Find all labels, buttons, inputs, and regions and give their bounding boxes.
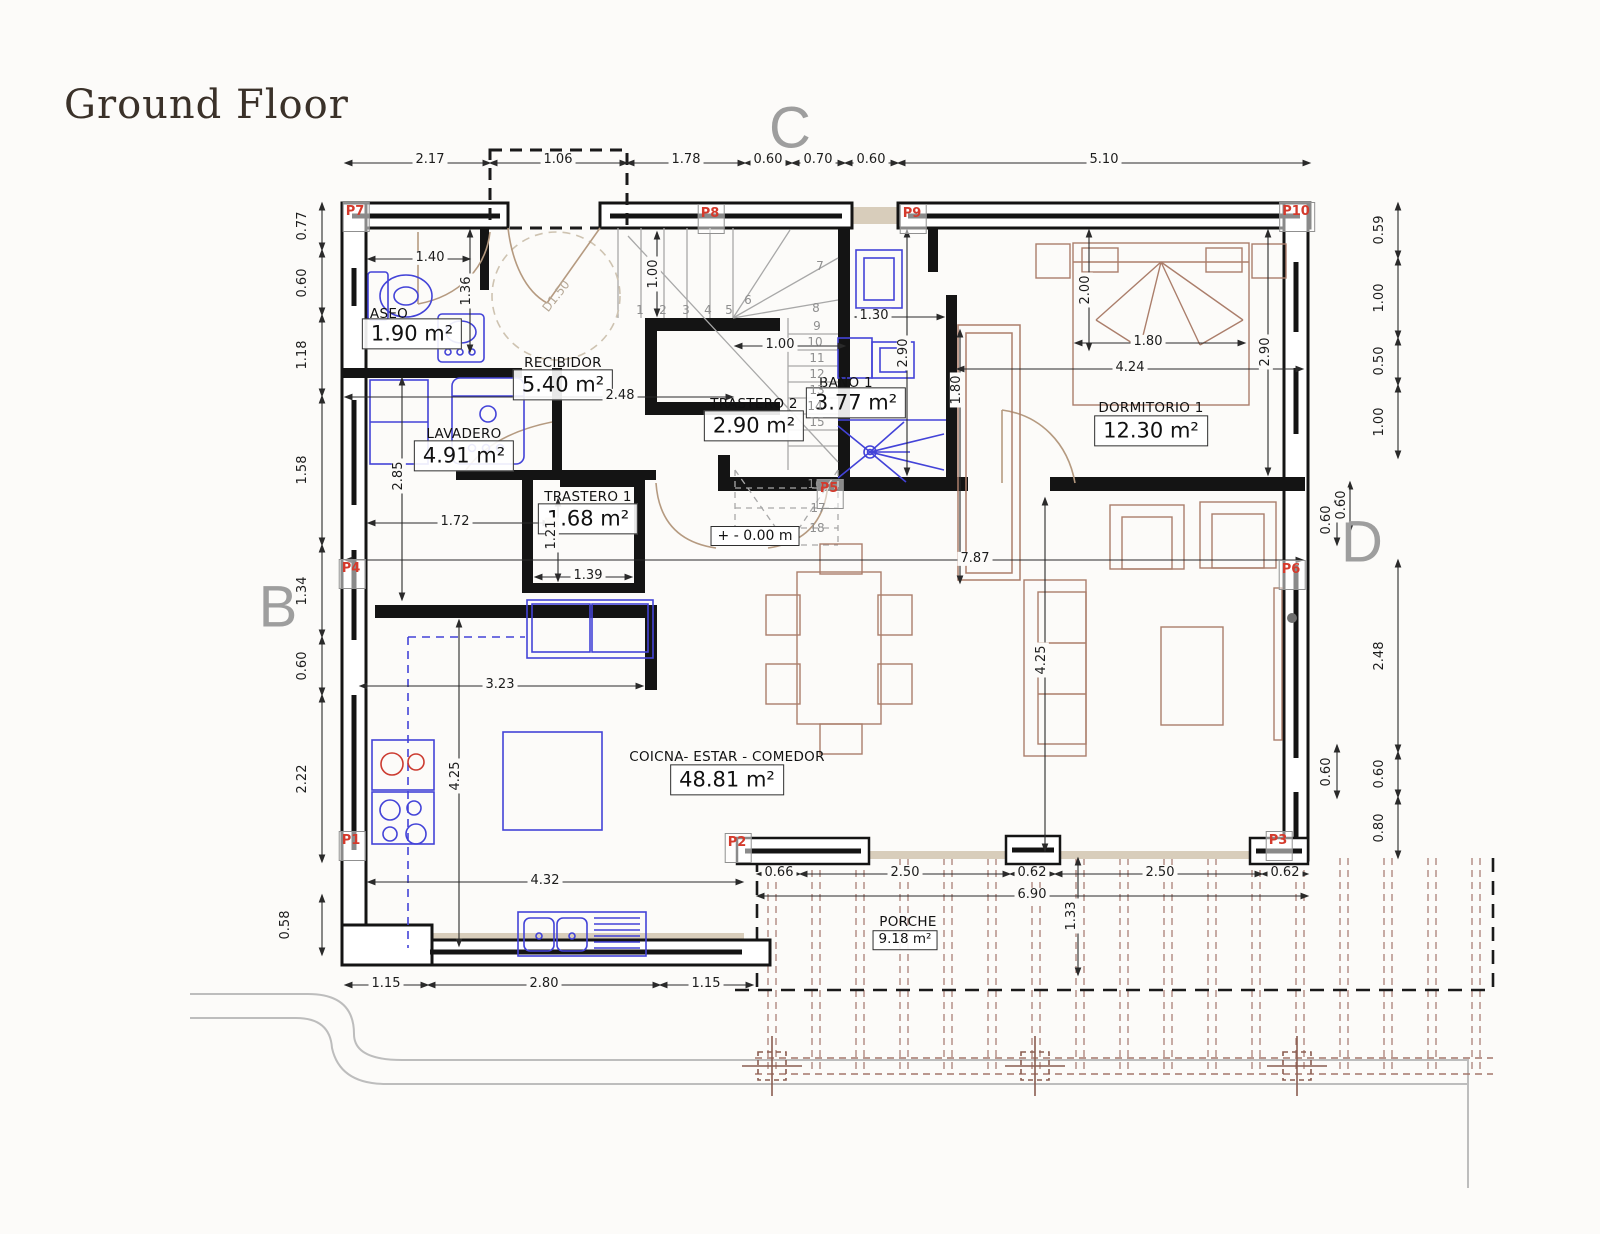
dim-interior: 1.40: [413, 251, 448, 265]
opening-label-p10: P10: [1279, 202, 1315, 232]
room-area-porche: 9.18 m²: [873, 930, 938, 950]
opening-label-p8: P8: [698, 204, 725, 234]
stair-step: 14: [807, 399, 822, 413]
dim-interior: 1.72: [438, 515, 473, 529]
opening-label-p7: P7: [343, 202, 370, 232]
dim-left: 1.58: [296, 453, 310, 488]
dim-left: 2.22: [296, 762, 310, 797]
floor-plan-page: Ground Floor C B D ASEO 1.90 m² RECIBIDO…: [0, 0, 1600, 1234]
page-title: Ground Floor: [64, 82, 349, 128]
wardrobe-outline: [958, 325, 1020, 580]
dim-interior: 3.23: [483, 678, 518, 692]
room-name-cocina-estar: COICNA- ESTAR - COMEDOR: [629, 749, 825, 765]
dim-right: 0.60: [1373, 757, 1387, 792]
dim-interior: 7.87: [958, 552, 993, 566]
opening-label-p9: P9: [900, 204, 927, 234]
dim-top: 0.60: [854, 153, 889, 167]
pergola-rafters: [755, 858, 1493, 1074]
stair-step: 12: [809, 367, 824, 381]
dim-top: 1.78: [669, 153, 704, 167]
dim-left: 0.77: [296, 209, 310, 244]
dim-right: 0.80: [1373, 811, 1387, 846]
stair-step: 17: [810, 501, 825, 515]
stair-step: 15: [809, 415, 824, 429]
dim-porch: 0.62: [1015, 866, 1050, 880]
dim-interior: 2.85: [392, 459, 406, 494]
stair-step: 13: [809, 383, 824, 397]
stair-step: 6: [744, 293, 752, 307]
stair-step: 3: [682, 303, 690, 317]
dim-porch: 6.90: [1015, 888, 1050, 902]
porch-boundary-dashed: [735, 858, 1493, 990]
stair-step: 16: [807, 477, 822, 491]
dim-bottom: 1.15: [369, 977, 404, 991]
room-name-dormitorio1: DORMITORIO 1: [1098, 400, 1203, 416]
stair-step: 5: [725, 303, 733, 317]
dim-porch: 0.66: [762, 866, 797, 880]
opening-label-p2: P2: [725, 833, 752, 863]
stair-step: 7: [816, 259, 824, 273]
stair-step: 10: [807, 335, 822, 349]
dim-porch: 0.62: [1268, 866, 1303, 880]
dim-bottom: 1.15: [689, 977, 724, 991]
stair-step: 2: [659, 303, 667, 317]
stair-step: 1: [636, 303, 644, 317]
pergola-posts: [742, 1036, 1327, 1096]
dim-left: 0.60: [296, 649, 310, 684]
dim-left: 1.18: [296, 338, 310, 373]
dim-right: 1.00: [1373, 405, 1387, 440]
dim-interior: 1.00: [763, 338, 798, 352]
dim-porch: 1.33: [1065, 899, 1079, 934]
hob-burners: [381, 753, 424, 775]
dim-interior: 2.00: [1079, 273, 1093, 308]
dim-right: 0.59: [1373, 213, 1387, 248]
dim-interior: 1.39: [571, 569, 606, 583]
dim-left: 0.58: [279, 908, 293, 943]
dim-interior: 1.80: [1131, 335, 1166, 349]
dim-top: 0.60: [751, 153, 786, 167]
dim-interior: 1.36: [460, 274, 474, 309]
dim-interior: 1.80: [950, 373, 964, 408]
stair-step: 11: [809, 351, 824, 365]
dim-top: 0.70: [801, 153, 836, 167]
stair-step: 18: [809, 521, 824, 535]
dim-top: 1.06: [541, 153, 576, 167]
dim-left: 1.34: [296, 574, 310, 609]
sliding-door-bars: [745, 850, 1302, 851]
opening-label-p3: P3: [1266, 831, 1293, 861]
slider-handle-dot: [1287, 613, 1297, 623]
dim-porch: 2.50: [1143, 866, 1178, 880]
dim-top: 5.10: [1087, 153, 1122, 167]
stair-step: 4: [704, 303, 712, 317]
dim-left: 0.60: [296, 266, 310, 301]
dim-interior: 4.32: [528, 874, 563, 888]
dim-interior: 1.21: [545, 518, 559, 553]
section-letter-b: B: [259, 574, 298, 641]
dim-interior: 1.30: [857, 309, 892, 323]
room-area-aseo: 1.90 m²: [362, 318, 462, 349]
dim-interior: 4.24: [1113, 361, 1148, 375]
opening-label-p1: P1: [339, 831, 366, 861]
dim-right: 0.60: [1335, 488, 1349, 523]
dim-interior: 2.48: [603, 389, 638, 403]
dim-right: 2.48: [1373, 639, 1387, 674]
dim-right-inner: 0.60: [1320, 755, 1334, 790]
room-name-porche: PORCHE: [879, 914, 936, 930]
opening-label-p6: P6: [1279, 560, 1306, 590]
room-area-dormitorio1: 12.30 m²: [1094, 415, 1208, 446]
stair-step: 8: [812, 301, 820, 315]
dim-bottom: 2.80: [527, 977, 562, 991]
level-marker: + - 0.00 m: [711, 526, 800, 546]
dim-interior: 4.25: [449, 759, 463, 794]
site-boundary-lines: [190, 994, 1468, 1188]
floor-plan-drawing: [0, 0, 1600, 1234]
room-area-trastero2: 2.90 m²: [704, 410, 804, 441]
dim-interior: 2.90: [897, 336, 911, 371]
room-area-recibidor: 5.40 m²: [513, 369, 613, 400]
dim-porch: 2.50: [888, 866, 923, 880]
dim-interior: 4.25: [1035, 643, 1049, 678]
room-area-cocina-estar: 48.81 m²: [670, 764, 784, 795]
dim-right-inner: 0.60: [1320, 503, 1334, 538]
room-area-lavadero: 4.91 m²: [414, 440, 514, 471]
dim-interior: 2.90: [1259, 335, 1273, 370]
opening-label-p4: P4: [339, 559, 366, 589]
dim-interior: 1.00: [647, 257, 661, 292]
dim-right: 1.00: [1373, 281, 1387, 316]
stair-step: 9: [813, 319, 821, 333]
dim-top: 2.17: [413, 153, 448, 167]
dim-right: 0.50: [1373, 344, 1387, 379]
